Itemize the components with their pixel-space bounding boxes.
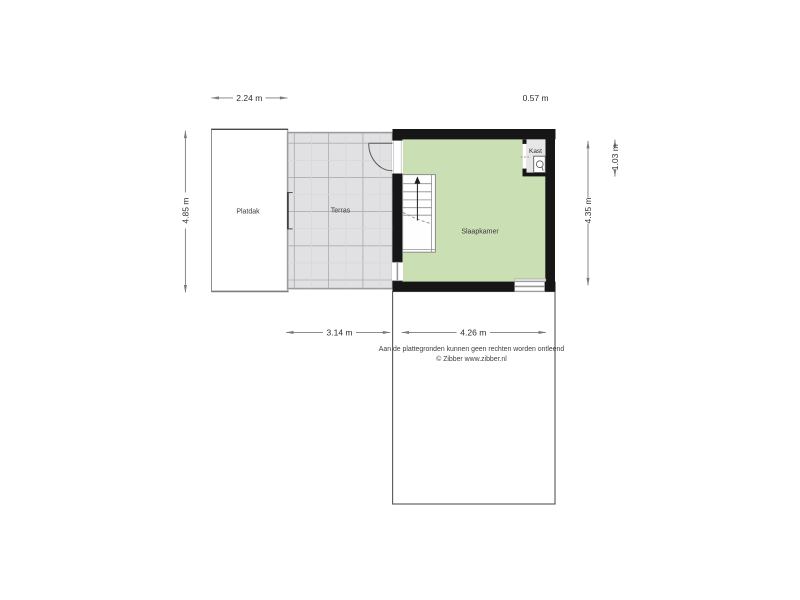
svg-text:3.14 m: 3.14 m <box>327 328 353 338</box>
svg-text:© Zibber www.zibber.nl: © Zibber www.zibber.nl <box>436 355 507 363</box>
svg-text:Terras: Terras <box>331 208 351 215</box>
svg-text:Aan de plattegronden kunnen ge: Aan de plattegronden kunnen geen rechten… <box>379 346 565 353</box>
svg-text:4.85 m: 4.85 m <box>180 198 190 224</box>
svg-text:2.24 m: 2.24 m <box>236 93 262 103</box>
svg-text:Platdak: Platdak <box>236 209 260 216</box>
svg-text:Slaapkamer: Slaapkamer <box>461 229 499 236</box>
svg-text:Kast: Kast <box>529 148 542 155</box>
svg-text:4.35 m: 4.35 m <box>583 198 593 224</box>
svg-text:4.26 m: 4.26 m <box>460 328 486 338</box>
svg-text:0.57 m: 0.57 m <box>523 93 549 103</box>
svg-text:1.03 m: 1.03 m <box>610 144 620 170</box>
